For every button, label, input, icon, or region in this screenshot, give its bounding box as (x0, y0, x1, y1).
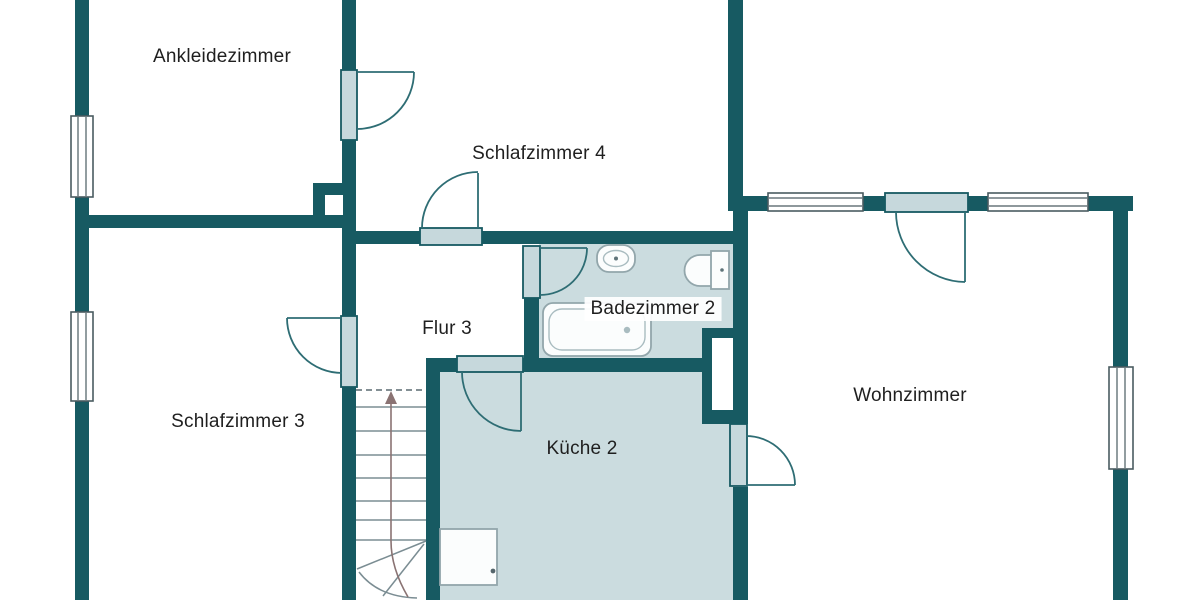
sink-icon (597, 245, 635, 272)
room-label-ankleidezimmer: Ankleidezimmer (153, 46, 291, 68)
floor-plan: Ankleidezimmer Schlafzimmer 4 Badezimmer… (0, 0, 1200, 600)
door-icon-kueche-wohnzimmer (730, 424, 795, 486)
stairs-icon (356, 390, 426, 598)
door-icon-wohnzimmer (885, 193, 968, 282)
room-label-wohnzimmer: Wohnzimmer (853, 385, 967, 407)
appliance-icon (440, 529, 497, 585)
toilet-icon (685, 251, 730, 289)
window-icon (71, 312, 93, 401)
room-label-badezimmer2: Badezimmer 2 (585, 297, 722, 321)
window-icon (768, 193, 863, 211)
door-icon-schlafzimmer3 (287, 316, 357, 387)
window-icon (988, 193, 1088, 211)
door-icon-schlafzimmer4 (420, 172, 482, 245)
stair-direction-arrow (385, 391, 397, 404)
room-label-schlafzimmer4: Schlafzimmer 4 (472, 143, 606, 165)
window-icon (1109, 367, 1133, 469)
room-label-schlafzimmer3: Schlafzimmer 3 (171, 411, 305, 433)
room-label-kueche2: Küche 2 (546, 438, 617, 460)
window-icon (71, 116, 93, 197)
door-icon-ankleidezimmer (341, 70, 414, 140)
room-label-flur3: Flur 3 (422, 318, 472, 340)
